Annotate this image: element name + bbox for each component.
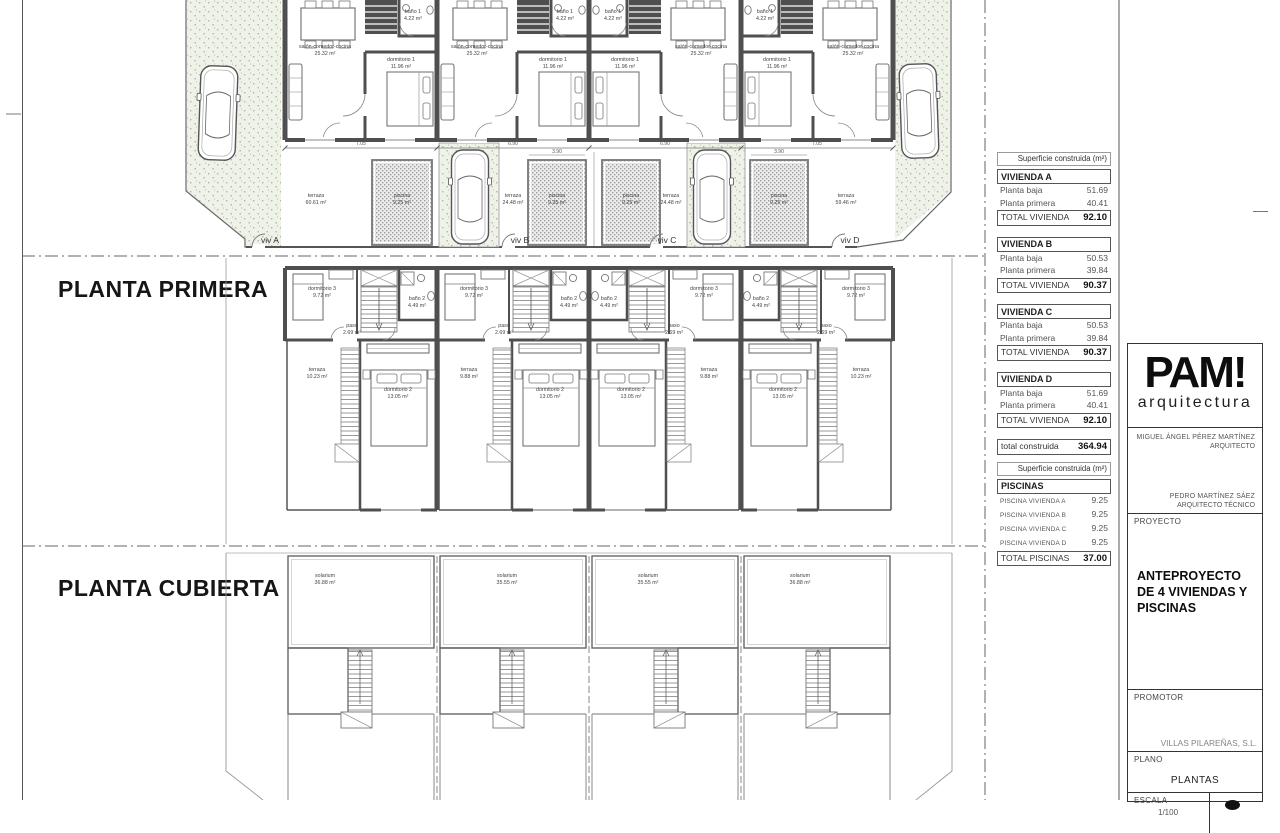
room-label: dormitorio 2 (769, 387, 797, 393)
total-piscinas-row: TOTAL PISCINAS37.00 (997, 551, 1111, 567)
logo-subtitle: arquitectura (1128, 394, 1262, 412)
terrace-label: terraza (505, 193, 522, 199)
room-label: baño 2 (409, 296, 425, 302)
terrace-label: 59.46 m² (836, 200, 857, 206)
table-total-row: TOTAL VIVIENDA90.37 (997, 345, 1111, 361)
cell: Planta primera (1000, 198, 1055, 209)
cell: 90.37 (1083, 281, 1107, 292)
section-label: PROYECTO (1128, 514, 1262, 526)
table-section-title: VIVIENDA C (997, 304, 1111, 319)
car-icon (449, 150, 492, 244)
room-label: terraza (309, 367, 326, 373)
table-row: PISCINA VIVIENDA C9.25 (997, 522, 1111, 536)
table-section-title: PISCINAS (997, 479, 1111, 494)
table-section-title: VIVIENDA B (997, 237, 1111, 252)
room-label: 11.96 m² (391, 64, 412, 70)
cell: 50.53 (1087, 320, 1108, 331)
room-label: 25.32 m² (843, 51, 864, 57)
room-label: dormitorio 2 (617, 387, 645, 393)
plan-drawing: 7.05 6.90 6.90 7.05 3.90 3.90 (0, 0, 1120, 800)
table-header: Superficie construida (m²) (997, 152, 1111, 166)
plano-value: PLANTAS (1128, 775, 1262, 786)
cell: 364.94 (1078, 442, 1107, 453)
cell: PISCINA VIVIENDA A (1000, 497, 1066, 507)
room-label: salón-comedor-cocina (675, 44, 727, 50)
escala-section: ESCALA 1/100 (1128, 793, 1262, 833)
table-row: PISCINA VIVIENDA D9.25 (997, 536, 1111, 550)
pool-label: piscina (771, 193, 788, 199)
pool-label: piscina (623, 193, 640, 199)
unit-roof-b (440, 556, 586, 800)
pool-label: piscina (549, 193, 566, 199)
cell: total construida (1001, 441, 1059, 452)
logo-section: PAM! arquitectura (1128, 344, 1262, 428)
room-label: 9.72 m² (313, 293, 331, 299)
table-row: Planta baja51.69 (997, 184, 1111, 197)
room-label: 35.55 m² (638, 580, 659, 586)
dim-label: 6.90 (660, 141, 670, 147)
room-label: 2.69 m² (817, 330, 835, 336)
car-icon (691, 150, 734, 244)
room-label: 9.72 m² (465, 293, 483, 299)
proyecto-section: PROYECTO ANTEPROYECTO DE 4 VIVIENDAS Y P… (1128, 514, 1262, 690)
cell: 50.53 (1087, 253, 1108, 264)
room-label: terraza (701, 367, 718, 373)
dim-label: 7.05 (356, 141, 366, 147)
table-section-title: VIVIENDA A (997, 169, 1111, 184)
viv-label: viv A (261, 235, 279, 245)
table-row: Planta primera40.41 (997, 399, 1111, 412)
room-label: solarium (497, 573, 518, 579)
room-label: dormitorio 3 (308, 286, 336, 292)
vivienda-b-table: VIVIENDA B Planta baja50.53 Planta prime… (997, 237, 1111, 294)
room-label: baño 1 (605, 9, 621, 15)
pool-label: 9.25 m² (622, 200, 640, 206)
terrace-label: 60.61 m² (306, 200, 327, 206)
architect-name: PEDRO MARTÍNEZ SÁEZ (1135, 493, 1255, 500)
terrace-label: 24.48 m² (503, 200, 524, 206)
pam-logo: PAM! (1128, 353, 1262, 393)
cell: PISCINA VIVIENDA D (1000, 539, 1066, 549)
room-label: salón-comedor-cocina (827, 44, 879, 50)
car-icon (896, 63, 942, 158)
room-label: dormitorio 1 (763, 57, 791, 63)
room-label: 13.05 m² (540, 394, 561, 400)
vivienda-a-table: VIVIENDA A Planta baja51.69 Planta prime… (997, 169, 1111, 226)
terrace-label: 24.48 m² (661, 200, 682, 206)
room-label: dormitorio 1 (387, 57, 415, 63)
room-label: baño 2 (753, 296, 769, 302)
table-total-row: TOTAL VIVIENDA92.10 (997, 210, 1111, 226)
title-block: PAM! arquitectura MIGUEL ÁNGEL PÉREZ MAR… (1127, 343, 1263, 802)
room-label: 4.49 m² (408, 303, 426, 309)
room-label: paso (498, 323, 510, 329)
table-row: Planta primera39.84 (997, 332, 1111, 345)
room-label: dormitorio 3 (460, 286, 488, 292)
cell: 40.41 (1087, 198, 1108, 209)
pool-label: 9.25 m² (548, 200, 566, 206)
room-label: 4.22 m² (756, 16, 774, 22)
cell: TOTAL VIVIENDA (1001, 415, 1069, 426)
room-label: 11.96 m² (767, 64, 788, 70)
room-label: baño 2 (561, 296, 577, 302)
room-label: 25.32 m² (315, 51, 336, 57)
room-label: 11.96 m² (615, 64, 636, 70)
room-label: dormitorio 3 (690, 286, 718, 292)
room-label: 4.22 m² (556, 16, 574, 22)
room-label: 2.69 m² (665, 330, 683, 336)
room-label: 2.69 m² (343, 330, 361, 336)
viv-label: viv D (841, 235, 860, 245)
room-label: salón-comedor-cocina (299, 44, 351, 50)
room-label: 4.49 m² (560, 303, 578, 309)
planta-primera-plan: PLANTA PRIMERA dormitorio 3 9.72 m² baño… (58, 258, 952, 544)
table-section-title: VIVIENDA D (997, 372, 1111, 387)
room-label: paso (668, 323, 680, 329)
unit-roof-d (744, 556, 890, 800)
cell: 51.69 (1087, 388, 1108, 399)
room-label: 4.49 m² (600, 303, 618, 309)
pool-label: piscina (394, 193, 411, 199)
section-label: PROMOTOR (1128, 690, 1262, 702)
table-row: Planta baja50.53 (997, 252, 1111, 265)
room-label: dormitorio 1 (539, 57, 567, 63)
cell: Planta primera (1000, 333, 1055, 344)
architects-section: MIGUEL ÁNGEL PÉREZ MARTÍNEZ ARQUITECTO P… (1128, 428, 1262, 514)
room-label: 36.88 m² (790, 580, 811, 586)
dim-label: 7.05 (812, 141, 822, 147)
north-cell (1209, 793, 1262, 833)
room-label: 9.88 m² (460, 374, 478, 380)
table-row: Planta primera39.84 (997, 264, 1111, 277)
table-total-row: TOTAL VIVIENDA90.37 (997, 278, 1111, 294)
cell: Planta baja (1000, 320, 1043, 331)
room-label: 9.72 m² (847, 293, 865, 299)
architect-role: ARQUITECTO TÉCNICO (1135, 502, 1255, 509)
room-label: baño 2 (601, 296, 617, 302)
cell: TOTAL VIVIENDA (1001, 212, 1069, 223)
terrace-label: terraza (663, 193, 680, 199)
room-label: 13.05 m² (388, 394, 409, 400)
planta-baja-plan: 7.05 6.90 6.90 7.05 3.90 3.90 (186, 0, 951, 250)
dim-label: 3.90 (774, 149, 784, 155)
table-row: Planta baja51.69 (997, 387, 1111, 400)
table-row: Planta primera40.41 (997, 197, 1111, 210)
promotor-value: VILLAS PILAREÑAS, S.L. (1161, 738, 1257, 748)
cell: Planta baja (1000, 253, 1043, 264)
cell: 9.25 (1091, 495, 1108, 505)
section-label: PLANO (1128, 752, 1262, 764)
cell: TOTAL VIVIENDA (1001, 280, 1069, 291)
cell: 9.25 (1091, 509, 1108, 519)
room-label: 13.05 m² (773, 394, 794, 400)
room-label: baño 1 (557, 9, 573, 15)
room-label: 25.32 m² (691, 51, 712, 57)
cell: Planta baja (1000, 388, 1043, 399)
room-label: 4.22 m² (604, 16, 622, 22)
total-construida-row: total construida364.94 (997, 439, 1111, 455)
dim-label: 3.90 (552, 149, 562, 155)
viv-label: viv B (511, 235, 530, 245)
promotor-section: PROMOTOR VILLAS PILAREÑAS, S.L. (1128, 690, 1262, 752)
section-label: ESCALA (1128, 793, 1209, 805)
cell: 37.00 (1083, 554, 1107, 565)
cell: Planta primera (1000, 400, 1055, 411)
cell: 39.84 (1087, 265, 1108, 276)
room-label: paso (346, 323, 358, 329)
room-label: 36.88 m² (315, 580, 336, 586)
cell: 9.25 (1091, 537, 1108, 547)
room-label: 4.22 m² (404, 16, 422, 22)
vivienda-d-table: VIVIENDA D Planta baja51.69 Planta prime… (997, 372, 1111, 429)
cell: Planta primera (1000, 265, 1055, 276)
dim-label: 6.90 (508, 141, 518, 147)
room-label: 2.69 m² (495, 330, 513, 336)
plan-sheet: { "plan": { "headings": { "primera": "PL… (0, 0, 1280, 800)
table-row: PISCINA VIVIENDA B9.25 (997, 508, 1111, 522)
room-label: 13.05 m² (621, 394, 642, 400)
car-icon (195, 65, 241, 160)
room-label: 25.32 m² (467, 51, 488, 57)
room-label: solarium (638, 573, 659, 579)
room-label: 9.88 m² (700, 374, 718, 380)
table-row: PISCINA VIVIENDA A9.25 (997, 494, 1111, 508)
room-label: solarium (315, 573, 336, 579)
plot-line (916, 553, 952, 800)
room-label: dormitorio 2 (536, 387, 564, 393)
pool-label: 9.25 m² (770, 200, 788, 206)
cell: TOTAL VIVIENDA (1001, 347, 1069, 358)
planta-primera-heading: PLANTA PRIMERA (58, 276, 268, 302)
architect-name: MIGUEL ÁNGEL PÉREZ MARTÍNEZ (1135, 434, 1255, 441)
area-tables: Superficie construida (m²) VIVIENDA A Pl… (997, 152, 1111, 566)
room-label: dormitorio 3 (842, 286, 870, 292)
viv-label: viv C (658, 235, 677, 245)
vivienda-c-table: VIVIENDA C Planta baja50.53 Planta prime… (997, 304, 1111, 361)
room-label: dormitorio 1 (611, 57, 639, 63)
room-label: baño 1 (757, 9, 773, 15)
table-total-row: TOTAL VIVIENDA92.10 (997, 413, 1111, 429)
room-label: terraza (853, 367, 870, 373)
cell: 40.41 (1087, 400, 1108, 411)
planta-cubierta-heading: PLANTA CUBIERTA (58, 575, 280, 601)
terrace-label: terraza (308, 193, 325, 199)
cell: 90.37 (1083, 348, 1107, 359)
room-label: 10.23 m² (307, 374, 328, 380)
project-title: ANTEPROYECTO DE 4 VIVIENDAS Y PISCINAS (1128, 526, 1262, 616)
room-label: baño 1 (405, 9, 421, 15)
room-label: 9.72 m² (695, 293, 713, 299)
room-label: 4.49 m² (752, 303, 770, 309)
terrace-label: terraza (838, 193, 855, 199)
unit-roof-c (592, 556, 738, 800)
room-label: 35.55 m² (497, 580, 518, 586)
plano-section: PLANO PLANTAS (1128, 752, 1262, 793)
north-arrow-icon (1225, 800, 1240, 810)
room-label: 10.23 m² (851, 374, 872, 380)
cell: TOTAL PISCINAS (1001, 553, 1069, 564)
table-header: Superficie construida (m²) (997, 462, 1111, 476)
cell: 9.25 (1091, 523, 1108, 533)
unit-roof-a (288, 556, 434, 800)
cell: 39.84 (1087, 333, 1108, 344)
fold-tick (1253, 211, 1268, 212)
room-label: paso (820, 323, 832, 329)
cell: PISCINA VIVIENDA B (1000, 511, 1066, 521)
planta-cubierta-plan: PLANTA CUBIERTA solarium 36.88 m² solari… (58, 553, 952, 800)
room-label: terraza (461, 367, 478, 373)
room-label: solarium (790, 573, 811, 579)
cell: Planta baja (1000, 185, 1043, 196)
cell: 92.10 (1083, 416, 1107, 427)
cell: 51.69 (1087, 185, 1108, 196)
escala-value: 1/100 (1158, 808, 1209, 817)
architect-role: ARQUITECTO (1135, 443, 1255, 450)
cell: 92.10 (1083, 213, 1107, 224)
table-row: Planta baja50.53 (997, 319, 1111, 332)
pool-label: 9.25 m² (393, 200, 411, 206)
room-label: salón-comedor-cocina (451, 44, 503, 50)
room-label: dormitorio 2 (384, 387, 412, 393)
room-label: 11.96 m² (543, 64, 564, 70)
cell: PISCINA VIVIENDA C (1000, 525, 1066, 535)
